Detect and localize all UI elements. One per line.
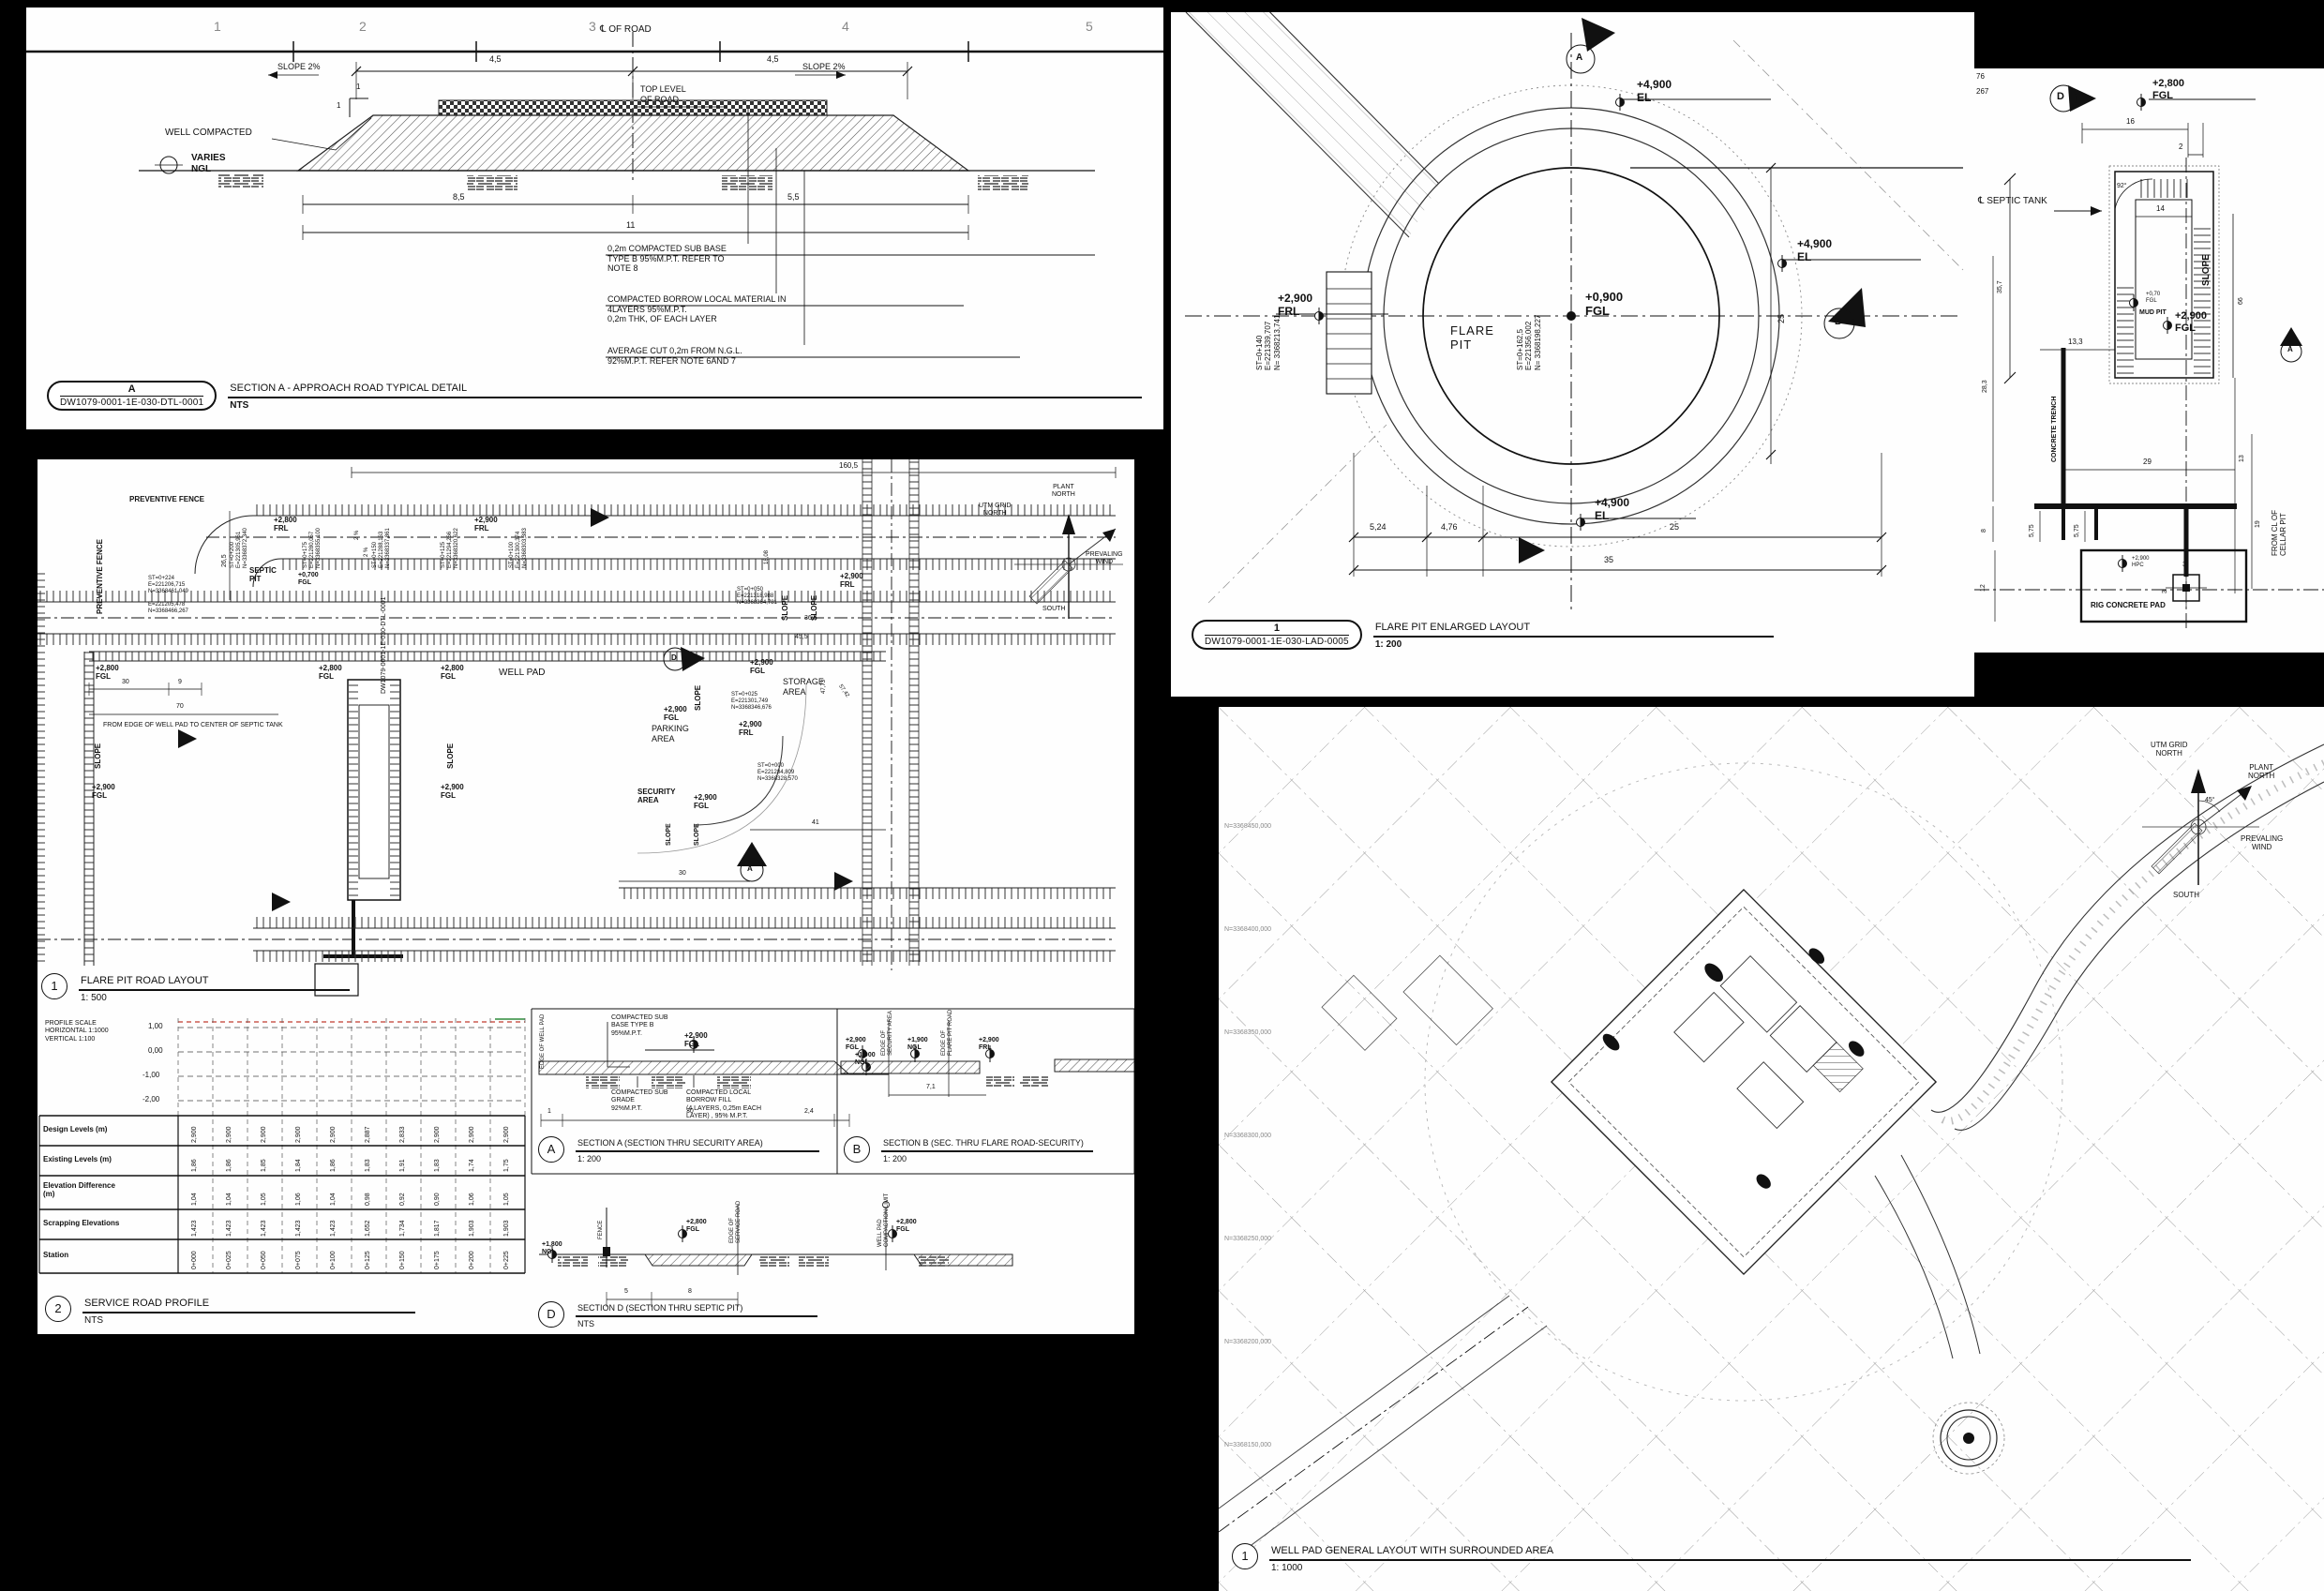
compass-plant-north: PLANT NORTH (1052, 484, 1075, 500)
well-compacted-label: WELL COMPACTED (165, 128, 252, 139)
cell: 2,900 (434, 1126, 442, 1143)
cell: 1,91 (399, 1159, 407, 1172)
cell: 0+025 (226, 1251, 233, 1269)
dim-5-24: 5,24 (1370, 522, 1387, 533)
cell: 2,900 (469, 1126, 476, 1143)
dim-7-1-b: 7,1 (926, 1084, 936, 1091)
cell: 1,423 (261, 1220, 268, 1237)
title-section-b: B SECTION B (SEC. THRU FLARE ROAD-SECURI… (844, 1136, 1093, 1165)
ngl-b: +1,900 NGL (907, 1037, 928, 1053)
edge-coord-267: 267 (1976, 87, 1988, 96)
panel-well-pad-general-layout: N=3368450,000 N=3368400,000 N=3368350,00… (1219, 707, 2324, 1591)
panel-septic-tank-detail: 76 267 D +2,800 FGL 16 2 ℄ SEPTIC TANK 9… (1974, 68, 2324, 653)
note-average-cut: AVERAGE CUT 0,2m FROM N.G.L. 92%M.P.T. R… (607, 346, 742, 366)
y-tick: -2,00 (142, 1095, 159, 1103)
cell: 1,04 (330, 1193, 337, 1206)
section-marker-a: A (2287, 345, 2293, 353)
fgl-2900-d: +2,900 FGL (664, 705, 687, 723)
cell: 1,817 (434, 1220, 442, 1237)
mud-pit-elev: +0,70 FGL (2146, 292, 2160, 305)
dim-13: 13 (2239, 455, 2246, 462)
dim-30-security: 30 (679, 870, 686, 878)
fgl-2800-a: +2,800 FGL (96, 664, 119, 682)
cell: 1,423 (226, 1220, 233, 1237)
dim-12: 12 (1980, 584, 1987, 592)
dim-5-d: 5 (624, 1288, 628, 1296)
frl-b: +2,900 FRL (979, 1037, 999, 1053)
edge-coord-76: 76 (1976, 72, 1985, 81)
cell: 1,05 (261, 1193, 268, 1206)
dim-8-5: 8,5 (453, 192, 465, 203)
dim-26-5: 26,5 (221, 554, 229, 567)
section-scale-b: 1: 200 (881, 1152, 1093, 1165)
varies-ngl-label: VARIES NGL (191, 153, 226, 175)
station-coords: ST=0+175 E=221280,057 N=3368355,100 (303, 528, 322, 568)
fgl-2800-c: +2,800 FGL (441, 664, 464, 682)
rig-concrete-pad-label: RIG CONCRETE PAD (2091, 601, 2166, 609)
cell: 1,903 (503, 1220, 511, 1237)
detail-bubble: 2 (45, 1296, 71, 1322)
dim-45-5: 45,5 (795, 634, 808, 641)
edge-of-well-pad: EDGE OF WELL PAD (540, 1014, 547, 1069)
cell: 1,05 (503, 1193, 511, 1206)
dim-25-bottom: 25 (1670, 522, 1679, 533)
dim-4-5-left: 4,5 (489, 54, 502, 65)
drawing-number: DW1079-0001-1E-030-LAD-0005 (1205, 636, 1349, 647)
dim-8-d: 8 (688, 1288, 692, 1296)
dim-4-5-right: 4,5 (767, 54, 779, 65)
drawing-number: DW1079-0001-1E-030-DTL-0001 (60, 397, 203, 408)
cell: 1,86 (226, 1159, 233, 1172)
dim-4-76: 4,76 (1441, 522, 1458, 533)
dim-41: 41 (812, 819, 819, 827)
n-grid-label: N=3368350,000 (1224, 1029, 1271, 1037)
station-coords: ST=0+025 E=221301,749 N=3368346,676 (731, 692, 772, 712)
dim-16: 16 (2126, 117, 2135, 126)
road-section-linework (26, 8, 1163, 429)
road-layout-linework (37, 459, 1134, 1334)
fgl-right-d: +2,800 FGL (896, 1219, 917, 1235)
cell: 1,74 (469, 1159, 476, 1172)
cell: 0+225 (503, 1251, 511, 1269)
fgl-2900-security: +2,900 FGL (694, 793, 717, 811)
cell: 2,900 (295, 1126, 303, 1143)
row-label: Scrapping Elevations (43, 1219, 119, 1227)
preventive-fence-label-v: PREVENTIVE FENCE (96, 539, 104, 614)
parking-area-label: PARKING AREA (652, 724, 689, 743)
slope-c: SLOPE (694, 685, 702, 711)
slope-left-label: SLOPE 2% (277, 62, 321, 72)
station-coords: ST=0+150 E=221288,163 N=3368337,861 (372, 528, 392, 568)
compass-wind: PREVALING WIND (1086, 551, 1123, 567)
section-title-d: SECTION D (SECTION THRU SEPTIC PIT) (576, 1301, 817, 1317)
dim-5-5: 5,5 (787, 192, 800, 203)
site-plan-linework (1219, 707, 2324, 1591)
station-coords: ST=0+125 E=221294,266 N=3368320,622 (441, 528, 460, 568)
slope-ratio-1: 1 (356, 83, 360, 91)
cell: 0+200 (469, 1251, 476, 1269)
title-section-a: A SECTION A (SECTION THRU SECURITY AREA)… (538, 1136, 819, 1165)
station-left-coords: ST=0+140 E=221339,707 N= 3368213,741 (1255, 315, 1282, 370)
y-tick: 1,00 (148, 1022, 163, 1030)
dim-66: 66 (2238, 297, 2245, 305)
title-road-layout: 1 FLARE PIT ROAD LAYOUT 1: 500 (41, 973, 350, 1005)
cell: 1,83 (434, 1159, 442, 1172)
cell: 0+075 (295, 1251, 303, 1269)
edge-security-b: EDGE OF SECURITY AREA (881, 1011, 894, 1056)
compass-utm-north: UTM GRID NORTH (979, 503, 1012, 518)
fgl-2800-b: +2,800 FGL (319, 664, 342, 682)
dim-14: 14 (2156, 204, 2165, 213)
el-top-label: +4,900 EL (1637, 78, 1672, 104)
section-title-a: SECTION A (SECTION THRU SECURITY AREA) (576, 1136, 819, 1152)
slope-right-label: SLOPE 2% (802, 62, 846, 72)
concrete-trench-label: CONCRETE TRENCH (2051, 397, 2059, 462)
dim-28-3: 28,3 (1982, 380, 1989, 393)
title-flare-pit: 1 DW1079-0001-1E-030-LAD-0005 FLARE PIT … (1192, 620, 1774, 652)
cell: 0+150 (399, 1251, 407, 1269)
title-service-road-profile: 2 SERVICE ROAD PROFILE NTS (45, 1296, 415, 1328)
preventive-fence-label: PREVENTIVE FENCE (129, 495, 204, 503)
flare-pit-linework (1171, 12, 1974, 697)
dim-5-75-b: 5,75 (2074, 524, 2081, 537)
cell: 2,900 (191, 1126, 199, 1143)
dim-35: 35 (1604, 555, 1613, 565)
drawing-title: SECTION A - APPROACH ROAD TYPICAL DETAIL (228, 381, 1142, 398)
cell: 2,900 (503, 1126, 511, 1143)
septic-pit-label: SEPTİC PIT (249, 566, 277, 584)
section-bubble-b: B (844, 1136, 870, 1163)
fgl-0700-label: +0,700 FGL (298, 572, 319, 588)
detail-bubble: 1 (1232, 1543, 1258, 1569)
section-marker-b: B (1835, 317, 1841, 328)
panel-flare-pit-enlarged: +4,900 EL +4,900 EL +4,900 EL +2,900 FRL… (1171, 12, 1974, 697)
frl-2800-label: +2,800 FRL (274, 516, 297, 533)
cell: 1,04 (191, 1193, 199, 1206)
drawing-title: FLARE PIT ENLARGED LAYOUT (1373, 620, 1774, 638)
slope-2pct-b: 2 % (364, 548, 370, 557)
grid-number: 5 (1086, 19, 1093, 35)
el-right-label: +4,900 EL (1797, 237, 1832, 263)
cell: 0,90 (434, 1193, 442, 1206)
detail-bubble: 1 (1205, 623, 1349, 636)
detail-bubble: 1 (41, 973, 67, 999)
cl-of-road-label: ℄ OF ROAD (600, 24, 652, 36)
title-well-pad-layout: 1 WELL PAD GENERAL LAYOUT WITH SURROUNDE… (1232, 1543, 2191, 1575)
from-cl-cellar-pit-label: FROM CL OF CELLAR PIT (2271, 503, 2288, 556)
cell: 2,900 (226, 1126, 233, 1143)
drawing-scale: 1: 1000 (1269, 1561, 2191, 1575)
section-title-b: SECTION B (SEC. THRU FLARE ROAD-SECURITY… (881, 1136, 1093, 1152)
panel-flare-pit-road-layout: 160,5 26,5 PREVENTIVE FENCE PREVENTIVE F… (37, 459, 1134, 1334)
compass-south: SOUTH (1042, 606, 1066, 613)
angle-92: 92° (2117, 183, 2127, 190)
section-marker-d: D (671, 653, 677, 662)
section-marker-d: D (2057, 91, 2064, 103)
slope-a: SLOPE (94, 743, 102, 769)
frl-left-label: +2,900 FRL (1278, 292, 1312, 318)
compass-utm-north: UTM GRID NORTH (2151, 741, 2188, 758)
section-marker-a: A (747, 864, 753, 873)
n-grid-label: N=3368250,000 (1224, 1236, 1271, 1243)
fgl-2900-label: +2,900 FGL (2175, 310, 2207, 335)
row-label: Design Levels (m) (43, 1125, 107, 1133)
station-coords: ST=0+224 E=221206,715 N=3368461,049 (148, 576, 188, 595)
cell: 2,900 (261, 1126, 268, 1143)
cell: 1,83 (365, 1159, 372, 1172)
frl-2900-b: +2,900 FRL (840, 572, 863, 590)
cell: 1,903 (469, 1220, 476, 1237)
fgl-a: +2,900 FGL (684, 1031, 708, 1049)
note-borrow-a: COMPACTED LOCAL BORROW FILL (4 LAYERS, 0… (686, 1089, 761, 1120)
drawing-scale: 1: 500 (79, 991, 350, 1005)
mud-pit-name: MUD PIT (2139, 309, 2167, 317)
cell: 0+000 (191, 1251, 199, 1269)
cell: 1,423 (330, 1220, 337, 1237)
well-pad-label: WELL PAD (499, 668, 545, 679)
row-label: Elevation Difference (m) (43, 1181, 115, 1199)
compass-south: SOUTH (2173, 891, 2199, 899)
dim-3-a: 3 (2182, 562, 2186, 569)
title-road-section: A DW1079-0001-1E-030-DTL-0001 SECTION A … (47, 381, 1142, 413)
cell: 1,75 (503, 1159, 511, 1172)
y-tick: 0,00 (148, 1046, 163, 1055)
cell: 0,92 (399, 1193, 407, 1206)
fgl-b: +2,900 FGL (846, 1037, 866, 1053)
slope-ratio-1: 1 (337, 101, 340, 110)
ngl-a: +1,900 NGL (855, 1052, 876, 1068)
slope-b: SLOPE (446, 743, 455, 769)
cell: 1,04 (226, 1193, 233, 1206)
cell: 1,86 (330, 1159, 337, 1172)
dim-8: 8 (1981, 529, 1988, 533)
note-subbase: 0,2m COMPACTED SUB BASE TYPE B 95%M.P.T.… (607, 244, 727, 274)
dim-2-4-a: 2,4 (804, 1108, 814, 1116)
storage-area-label: STORAGE AREA (783, 677, 824, 697)
section-bubble-d: D (538, 1301, 564, 1328)
note-subgrade-a: COMPACTED SUB GRADE 92%M.P.T. (611, 1089, 668, 1113)
cell: 1,423 (295, 1220, 303, 1237)
section-marker-a: A (1576, 53, 1582, 64)
cell: 0+175 (434, 1251, 442, 1269)
section-scale-d: NTS (576, 1317, 817, 1330)
drawing-sheet-collage: 1 2 3 4 5 ℄ OF ROAD 4,5 4,5 WELL COMPACT… (0, 0, 2324, 1591)
station-center-coords: ST=0+162,5 E=221356,002 N= 3368198,227 (1516, 315, 1542, 370)
title-section-d: D SECTION D (SECTION THRU SEPTIC PIT) NT… (538, 1301, 817, 1330)
note-borrow: COMPACTED BORROW LOCAL MATERIAL IN 4LAYE… (607, 294, 787, 324)
drawing-title: FLARE PIT ROAD LAYOUT (79, 973, 350, 991)
fgl-center-label: +0,900 FGL (1585, 290, 1623, 319)
el-bottom-label: +4,900 EL (1595, 496, 1629, 522)
dim-9: 9 (178, 679, 182, 686)
fence-d: FENCE (598, 1221, 605, 1239)
fgl-2800-label: +2,800 FGL (2152, 78, 2184, 102)
dim-35-7: 35,7 (1997, 280, 2004, 293)
dim-13-3: 13,3 (2068, 338, 2083, 346)
edge-flare-b: EDGE OF FLARE PIT ROAD (941, 1010, 954, 1056)
panel-approach-road-detail: 1 2 3 4 5 ℄ OF ROAD 4,5 4,5 WELL COMPACT… (26, 8, 1163, 429)
compass-plant-north: PLANT NORTH (2248, 763, 2274, 781)
dim-36-5: 36,5 (804, 615, 817, 623)
fgl-left-d: +2,800 FGL (686, 1219, 707, 1235)
profile-scale-note: PROFILE SCALE HORIZONTAL 1:1000 VERTICAL… (45, 1020, 109, 1043)
n-grid-label: N=3368300,000 (1224, 1133, 1271, 1140)
cl-septic-tank-label: ℄ SEPTIC TANK (1978, 196, 2047, 207)
n-grid-label: N=3368400,000 (1224, 926, 1271, 934)
cell: 1,86 (191, 1159, 199, 1172)
fgl-2900-a: +2,900 FGL (92, 783, 115, 801)
n-grid-label: N=3368150,000 (1224, 1442, 1271, 1449)
cell: 0,98 (365, 1193, 372, 1206)
drawing-ref-rotated: DW1079-0001-1E-030-DTL-0001 (381, 597, 388, 695)
dim-3-b: 3 (2162, 590, 2169, 593)
cell: 1,423 (191, 1220, 199, 1237)
dim-30: 30 (122, 679, 129, 686)
frl-2900-label: +2,900 FRL (474, 516, 498, 533)
coords-extra: E=221205,478 N=3368466,267 (148, 602, 188, 615)
compass-wind: PREVALING WIND (2241, 834, 2283, 852)
top-level-label: TOP LEVEL OF ROAD (640, 84, 686, 104)
slope-d: SLOPE (781, 595, 789, 621)
frl-2900-c: +2,900 FRL (739, 720, 762, 738)
hpc-elev: +2,900 HPC (2132, 556, 2150, 569)
dim-18-08: 18,08 (764, 550, 771, 564)
dim-29: 29 (2143, 458, 2152, 466)
security-area-label: SECURITY AREA (637, 788, 675, 805)
cell: 1,85 (261, 1159, 268, 1172)
dim-19: 19 (2255, 520, 2262, 528)
dim-2: 2 (2179, 143, 2182, 151)
dim-1-a: 1 (547, 1108, 551, 1116)
station-coords: ST=0+000 E=221284,809 N=3368328,570 (757, 763, 798, 783)
drawing-title: SERVICE ROAD PROFILE (82, 1296, 415, 1313)
cell: 2,833 (399, 1126, 407, 1143)
compass-angle: 45° (2205, 797, 2215, 804)
dim-70: 70 (176, 703, 184, 711)
cell: 1,734 (399, 1220, 407, 1237)
slope-2pct-a: 2 % (354, 531, 361, 540)
drawing-scale: NTS (228, 398, 1142, 413)
section-bubble-a: A (538, 1136, 564, 1163)
drawing-title: WELL PAD GENERAL LAYOUT WITH SURROUNDED … (1269, 1543, 2191, 1561)
cell: 0+125 (365, 1251, 372, 1269)
title-pill: A DW1079-0001-1E-030-DTL-0001 (47, 381, 217, 411)
grid-number: 4 (842, 19, 849, 35)
y-tick: -1,00 (142, 1071, 159, 1079)
cell: 1,84 (295, 1159, 303, 1172)
drawing-scale: NTS (82, 1313, 415, 1328)
dim-160-5: 160,5 (839, 461, 858, 470)
ngl-d: +1,800 NGL (542, 1241, 562, 1257)
drawing-scale: 1: 200 (1373, 638, 1774, 652)
cell: 0+100 (330, 1251, 337, 1269)
cell: 1,652 (365, 1220, 372, 1237)
fgl-2900-c: +2,900 FGL (750, 658, 773, 676)
grid-number: 2 (359, 19, 367, 35)
n-grid-label: N=3368450,000 (1224, 823, 1271, 831)
flare-pit-name: FLARE PIT (1450, 323, 1494, 353)
slope-g: SLOPE (694, 823, 701, 846)
row-label: Existing Levels (m) (43, 1155, 112, 1163)
cell: 1,06 (469, 1193, 476, 1206)
dim-30-a: 30 (686, 1108, 694, 1116)
dim-5-75-a: 5,75 (2029, 524, 2036, 537)
cell: 2,900 (330, 1126, 337, 1143)
n-grid-label: N=3368200,000 (1224, 1339, 1271, 1346)
dim-25-right: 25 (1777, 314, 1787, 323)
slope-label: SLOPE (2201, 254, 2212, 286)
detail-bubble: A (60, 383, 203, 397)
cell: 1,06 (295, 1193, 303, 1206)
grid-number: 1 (214, 19, 221, 35)
cell: 2,887 (365, 1126, 372, 1143)
row-label: Station (43, 1251, 68, 1259)
station-coords: ST=0+100 E=221300,374 N=3368303,383 (509, 528, 529, 568)
cell: 0+050 (261, 1251, 268, 1269)
station-coords: ST=0+200 E=221305,961 N=3368372,340 (230, 528, 249, 568)
slope-f: SLOPE (666, 823, 673, 846)
note-subbase-a: COMPACTED SUB BASE TYPE B 95%M.P.T. (611, 1014, 668, 1038)
edge-service-road-d: EDGE OF SERVICE ROAD (729, 1201, 742, 1243)
grid-number: 3 (589, 19, 596, 35)
from-edge-note: FROM EDGE OF WELL PAD TO CENTER OF SEPTI… (103, 722, 283, 729)
section-scale-a: 1: 200 (576, 1152, 819, 1165)
dim-11: 11 (626, 220, 635, 231)
well-pad-limit-d: WELL PAD COMPACTION LIMIT (877, 1193, 891, 1247)
station-coords: ST=0+050 E=221318,988 N=3368364,781 (737, 587, 777, 607)
fgl-2900-b: +2,900 FGL (441, 783, 464, 801)
